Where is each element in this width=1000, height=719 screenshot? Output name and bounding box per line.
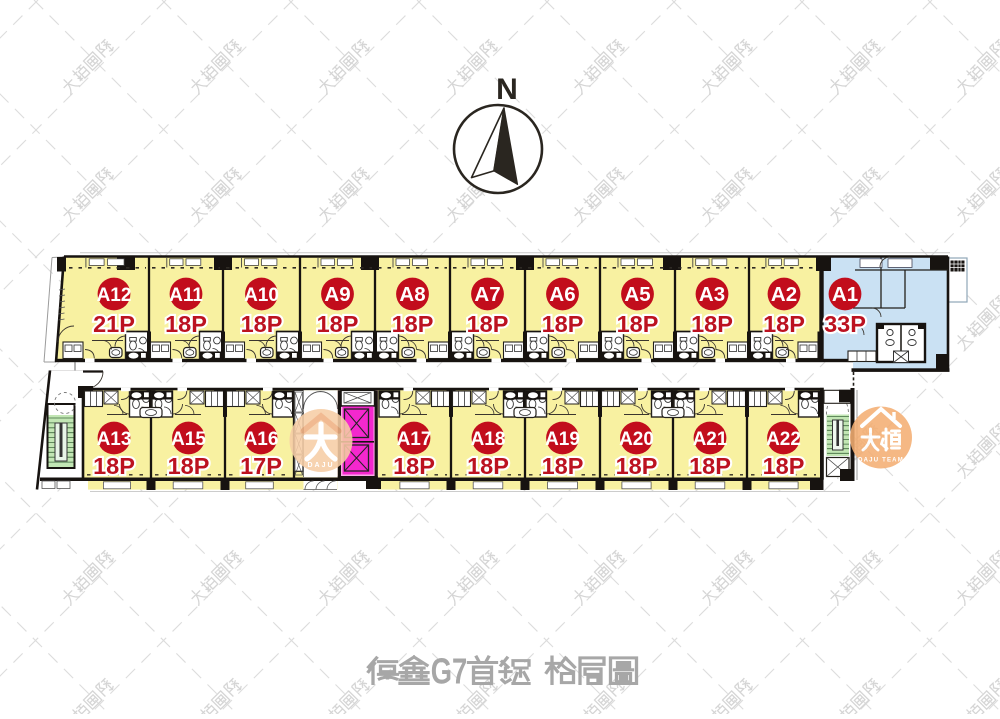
svg-text:A21: A21 (693, 429, 728, 450)
svg-text:A10: A10 (244, 285, 279, 306)
svg-text:17P: 17P (240, 453, 282, 479)
svg-text:A12: A12 (97, 285, 132, 306)
svg-text:A1: A1 (832, 283, 858, 306)
svg-text:18P: 18P (168, 453, 210, 479)
svg-text:A20: A20 (619, 429, 654, 450)
svg-text:A6: A6 (549, 283, 575, 306)
svg-text:18P: 18P (317, 311, 359, 337)
svg-text:A7: A7 (474, 283, 500, 306)
svg-text:18P: 18P (763, 453, 805, 479)
svg-text:A5: A5 (624, 283, 650, 306)
svg-text:18P: 18P (467, 311, 509, 337)
svg-text:A8: A8 (399, 283, 425, 306)
svg-text:18P: 18P (241, 311, 283, 337)
svg-text:18P: 18P (617, 311, 659, 337)
svg-text:A18: A18 (471, 429, 506, 450)
svg-text:18P: 18P (542, 311, 584, 337)
svg-text:18P: 18P (689, 453, 731, 479)
svg-text:18P: 18P (165, 311, 207, 337)
svg-text:A9: A9 (324, 283, 350, 306)
svg-text:18P: 18P (467, 453, 509, 479)
svg-text:A15: A15 (171, 429, 206, 450)
svg-text:A22: A22 (766, 429, 801, 450)
svg-text:18P: 18P (393, 453, 435, 479)
svg-text:18P: 18P (691, 311, 733, 337)
svg-text:21P: 21P (93, 311, 135, 337)
svg-text:A2: A2 (771, 283, 797, 306)
svg-text:A16: A16 (244, 429, 279, 450)
svg-text:18P: 18P (616, 453, 658, 479)
svg-text:A3: A3 (699, 283, 725, 306)
svg-text:N: N (496, 73, 518, 106)
svg-text:18P: 18P (763, 311, 805, 337)
svg-text:A13: A13 (97, 429, 132, 450)
svg-text:A19: A19 (545, 429, 580, 450)
svg-text:DAJU TEAM: DAJU TEAM (858, 458, 904, 464)
svg-text:18P: 18P (392, 311, 434, 337)
svg-text:18P: 18P (542, 453, 584, 479)
svg-text:G7: G7 (431, 651, 468, 692)
svg-text:18P: 18P (93, 453, 135, 479)
svg-text:33P: 33P (824, 311, 866, 337)
svg-text:A17: A17 (397, 429, 432, 450)
svg-text:A11: A11 (169, 285, 203, 306)
svg-text:DAJU: DAJU (307, 462, 334, 469)
